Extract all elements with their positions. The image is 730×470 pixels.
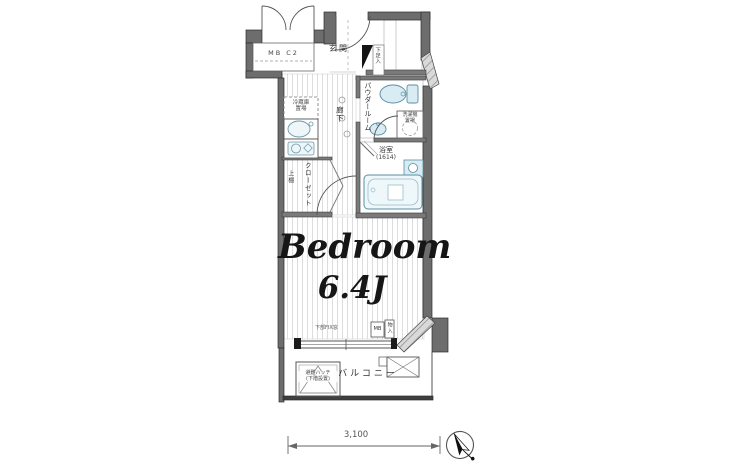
washing-machine-label: 洗濯機 置場 — [396, 113, 424, 124]
meter-box-label: MB C2 — [253, 50, 314, 57]
bedroom-name: Bedroom — [278, 228, 426, 266]
entrance-label: 玄関 — [329, 45, 349, 54]
storage-label: 物入 — [386, 322, 392, 334]
powder-room-label: パウダールーム — [363, 82, 371, 131]
meter-box-2-label: MB — [371, 327, 384, 333]
window-note-label: 下部FIX窓 — [315, 326, 338, 332]
shoe-cabinet-label: 下足入 — [374, 47, 380, 64]
north-compass-icon — [442, 427, 481, 469]
refrigerator-label: 冷蔵庫 置場 — [284, 100, 318, 112]
kitchen-sink-icon — [288, 121, 310, 137]
closet-label: クローゼット — [303, 162, 310, 207]
mb-double-doors — [262, 6, 314, 30]
evacuation-hatch-label: 避難ハッチ (下階設置) — [297, 371, 339, 382]
toilet-icon — [380, 85, 418, 103]
closet-shelf-label: 上棚 — [286, 170, 293, 184]
washbasin-icon — [370, 123, 386, 135]
bathtub-icon — [364, 175, 422, 209]
floorplan-page: MB C2 玄関 下足入 冷蔵庫 置場 廊下 パウダールーム 洗濯機 置場 浴室… — [0, 0, 730, 470]
bathroom-label: 浴室 (1614) — [362, 147, 410, 162]
corridor-label: 廊下 — [335, 106, 343, 123]
dimension-label: 3,100 — [330, 431, 382, 441]
bedroom-size: 6.4J — [278, 271, 426, 306]
balcony-label: バルコニー — [330, 369, 406, 379]
